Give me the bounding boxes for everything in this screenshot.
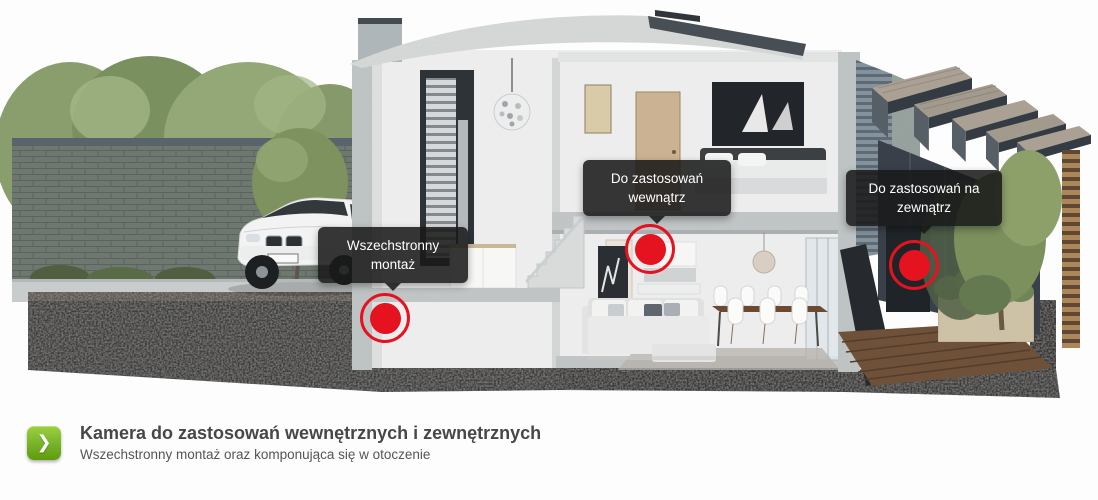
sliding-glass-door [806, 238, 840, 360]
tooltip-pointer [385, 283, 401, 291]
camera-promo-banner: Wszechstronny montaż Do zastosowań wewną… [0, 0, 1098, 500]
caption-bar: ❯ Kamera do zastosowań wewnętrznych i ze… [0, 420, 1098, 464]
tooltip-pointer [916, 226, 932, 234]
tooltip-pointer [649, 216, 665, 224]
hotspot-dot [635, 234, 666, 265]
hotspot-dot [370, 303, 401, 334]
hotspot-marker-mount[interactable] [360, 293, 410, 343]
tooltip-indoor: Do zastosowań wewnątrz [583, 160, 731, 216]
tooltip-text-line: Do zastosowań [591, 169, 723, 188]
tooltip-text-line: zewnątrz [854, 198, 994, 217]
caption-text-block: Kamera do zastosowań wewnętrznych i zewn… [80, 420, 541, 464]
hotspot-dot [899, 250, 930, 281]
hotspot-marker-indoor[interactable] [625, 224, 675, 274]
tooltip-outdoor: Do zastosowań na zewnątrz [846, 170, 1002, 226]
hotspot-marker-outdoor[interactable] [889, 240, 939, 290]
arrow-button[interactable]: ❯ [27, 426, 61, 460]
slat-screen [1062, 150, 1080, 348]
tooltip-text-line: wewnątrz [591, 188, 723, 207]
tooltip-text-line: Do zastosowań na [854, 179, 994, 198]
tooltip-text-line: Wszechstronny [326, 236, 460, 255]
banner-subtitle: Wszechstronny montaż oraz komponująca si… [80, 446, 541, 464]
sailboat-wall-art [712, 82, 804, 146]
sofa [582, 298, 716, 362]
tooltip-text-line: montaż [326, 255, 460, 274]
banner-title: Kamera do zastosowań wewnętrznych i zewn… [80, 422, 541, 444]
tooltip-mount: Wszechstronny montaż [318, 227, 468, 283]
chevron-right-icon: ❯ [36, 433, 51, 451]
abstract-wall-art [598, 246, 628, 302]
